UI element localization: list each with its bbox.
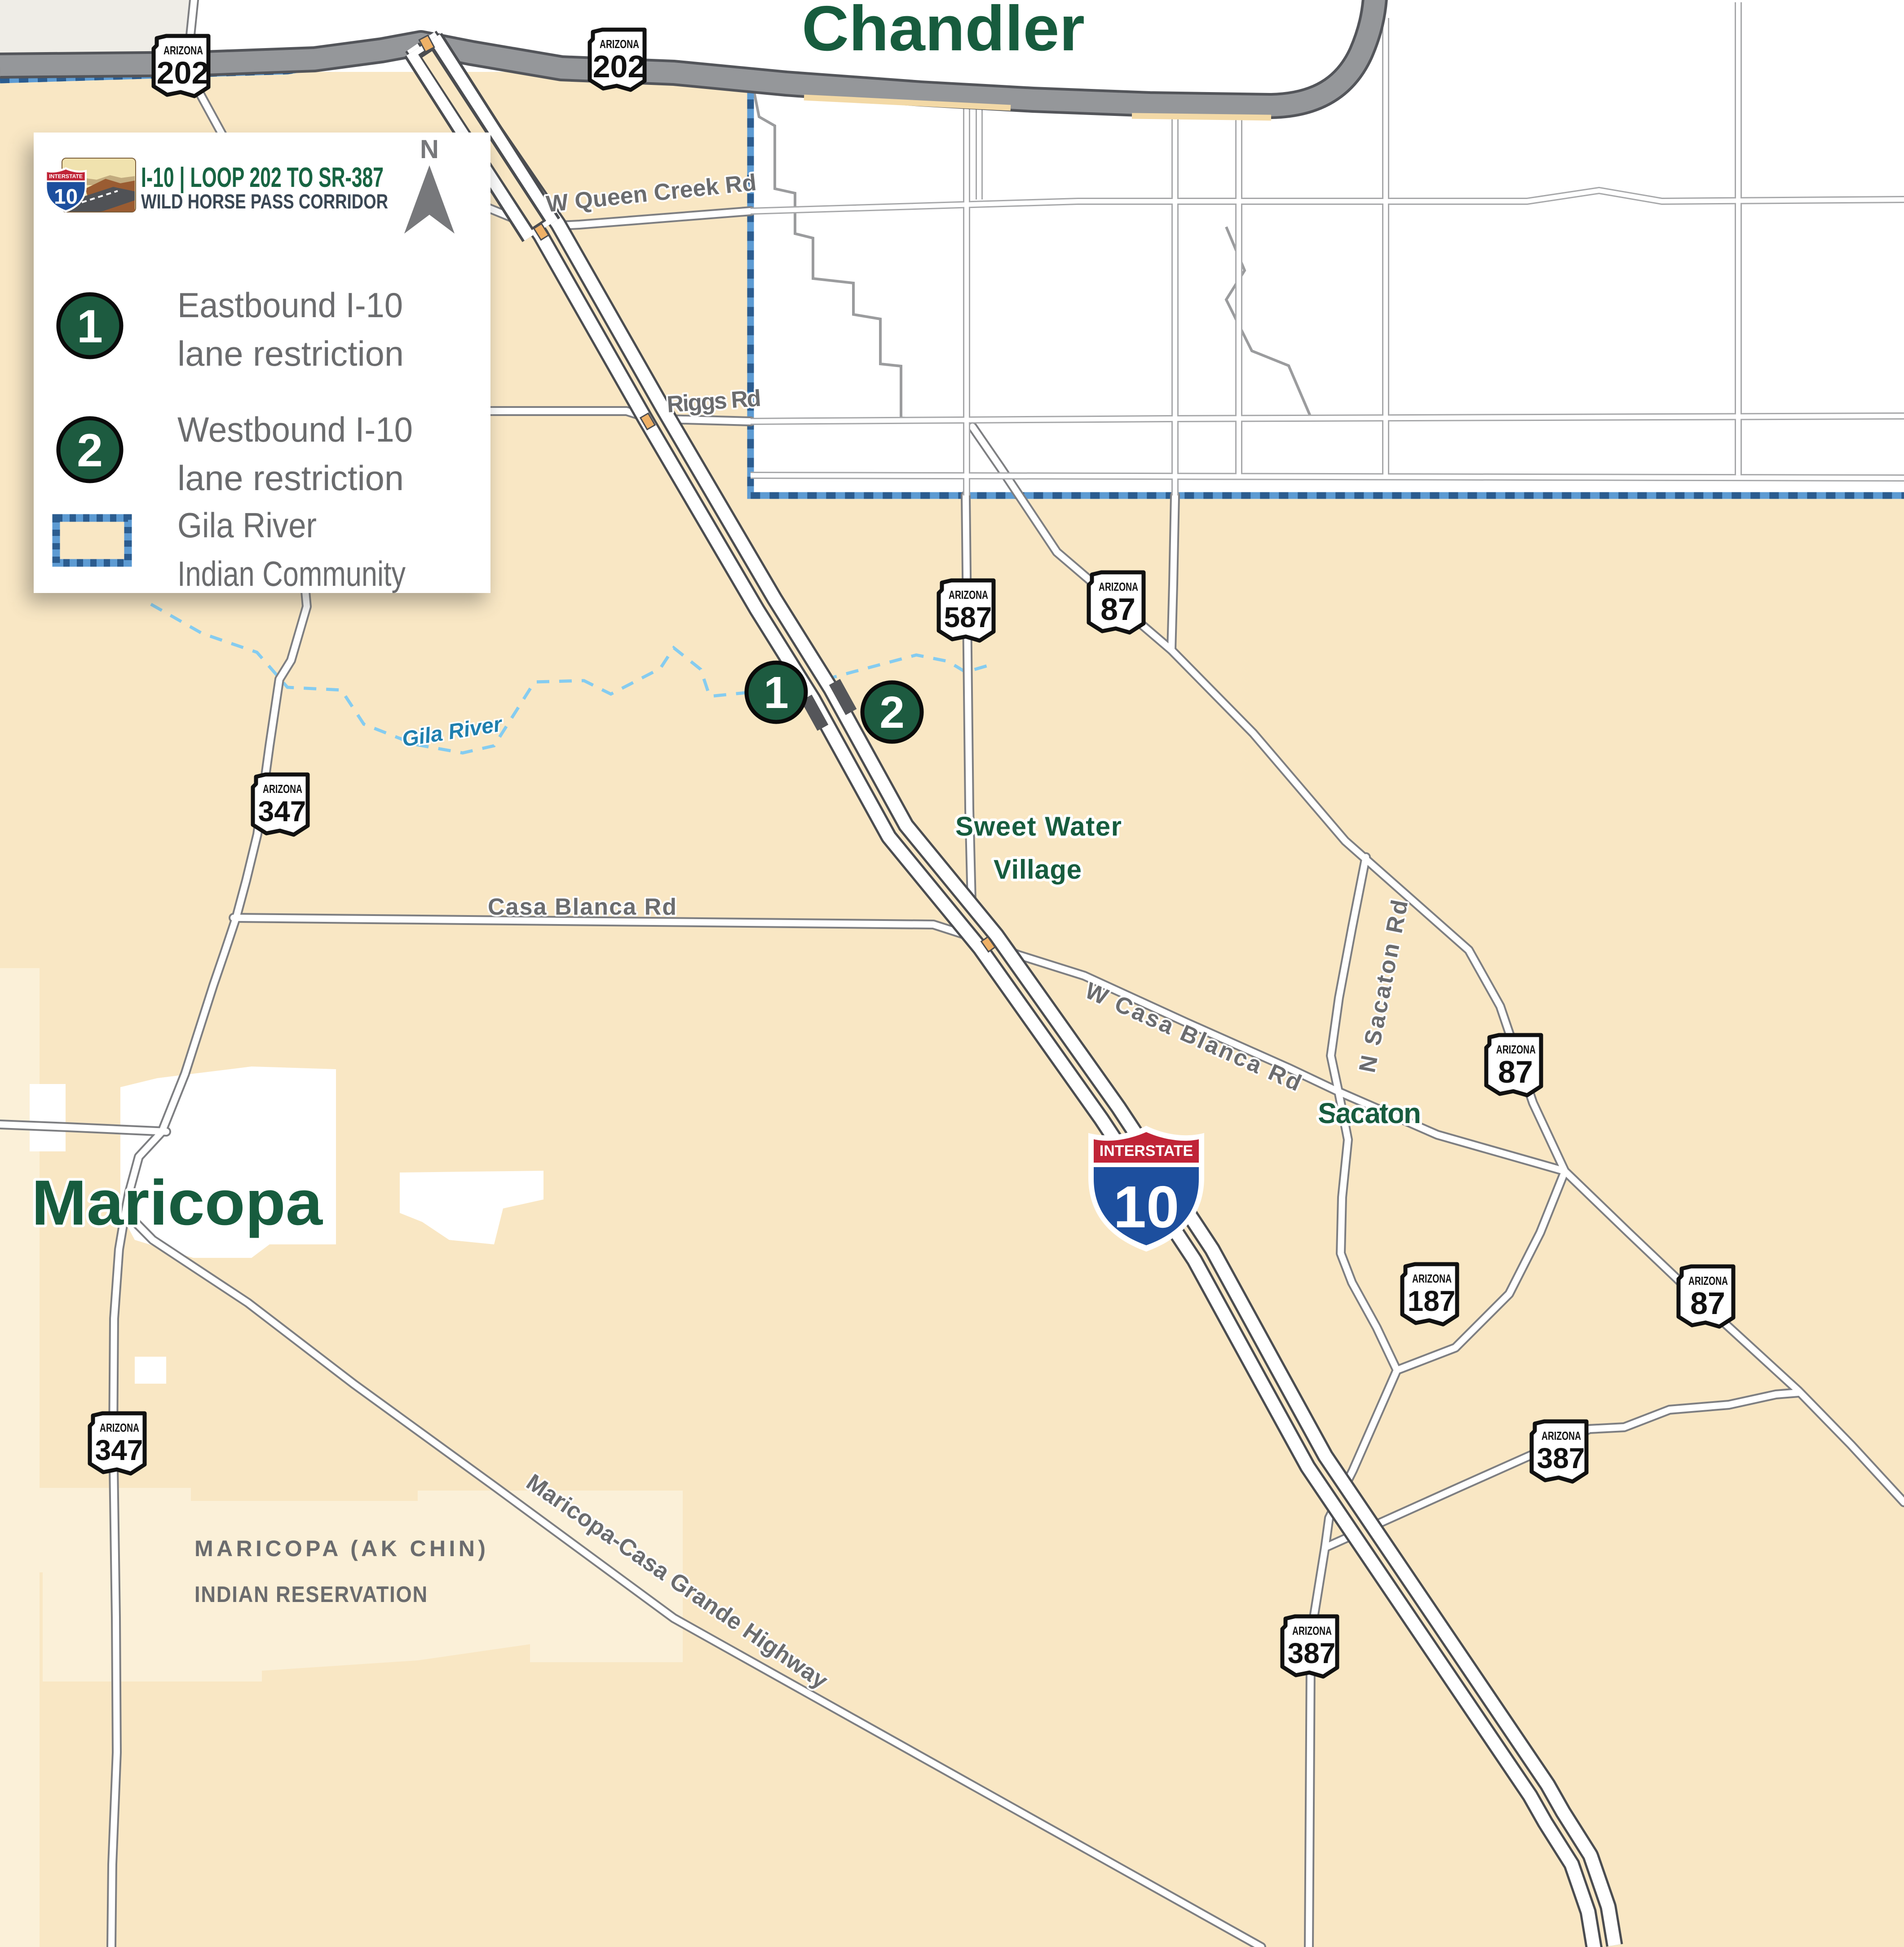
svg-text:Sacaton: Sacaton (1318, 1097, 1421, 1129)
svg-text:87: 87 (1498, 1054, 1533, 1089)
svg-text:1: 1 (77, 301, 103, 353)
svg-text:Gila River: Gila River (177, 505, 317, 545)
svg-text:Eastbound I-10: Eastbound I-10 (177, 285, 403, 325)
svg-text:2: 2 (879, 687, 905, 738)
svg-text:Chandler: Chandler (802, 0, 1085, 64)
svg-text:N: N (420, 135, 439, 164)
svg-text:lane restriction: lane restriction (177, 458, 404, 498)
svg-text:387: 387 (1537, 1442, 1585, 1474)
svg-text:347: 347 (95, 1434, 143, 1466)
svg-text:I-10 | LOOP 202 TO SR-387: I-10 | LOOP 202 TO SR-387 (141, 162, 384, 194)
svg-text:Village: Village (994, 854, 1082, 885)
svg-text:Casa Blanca Rd: Casa Blanca Rd (488, 894, 676, 920)
svg-text:INDIAN RESERVATION: INDIAN RESERVATION (194, 1582, 428, 1607)
svg-text:587: 587 (944, 601, 992, 633)
svg-text:347: 347 (258, 795, 306, 827)
svg-text:1: 1 (764, 668, 789, 718)
svg-text:Westbound I-10: Westbound I-10 (177, 410, 413, 449)
svg-text:2: 2 (77, 425, 103, 477)
svg-text:387: 387 (1288, 1637, 1336, 1669)
svg-text:WILD HORSE PASS CORRIDOR: WILD HORSE PASS CORRIDOR (141, 190, 388, 213)
svg-text:87: 87 (1690, 1286, 1725, 1321)
svg-text:MARICOPA (AK CHIN): MARICOPA (AK CHIN) (194, 1536, 486, 1561)
svg-text:202: 202 (593, 49, 645, 84)
svg-text:187: 187 (1408, 1285, 1456, 1317)
svg-text:Maricopa: Maricopa (31, 1167, 323, 1239)
svg-text:202: 202 (157, 55, 209, 90)
svg-text:87: 87 (1100, 592, 1135, 627)
svg-text:Indian Community: Indian Community (177, 554, 406, 593)
svg-text:lane restriction: lane restriction (177, 334, 404, 373)
svg-text:Sweet Water: Sweet Water (955, 811, 1122, 841)
